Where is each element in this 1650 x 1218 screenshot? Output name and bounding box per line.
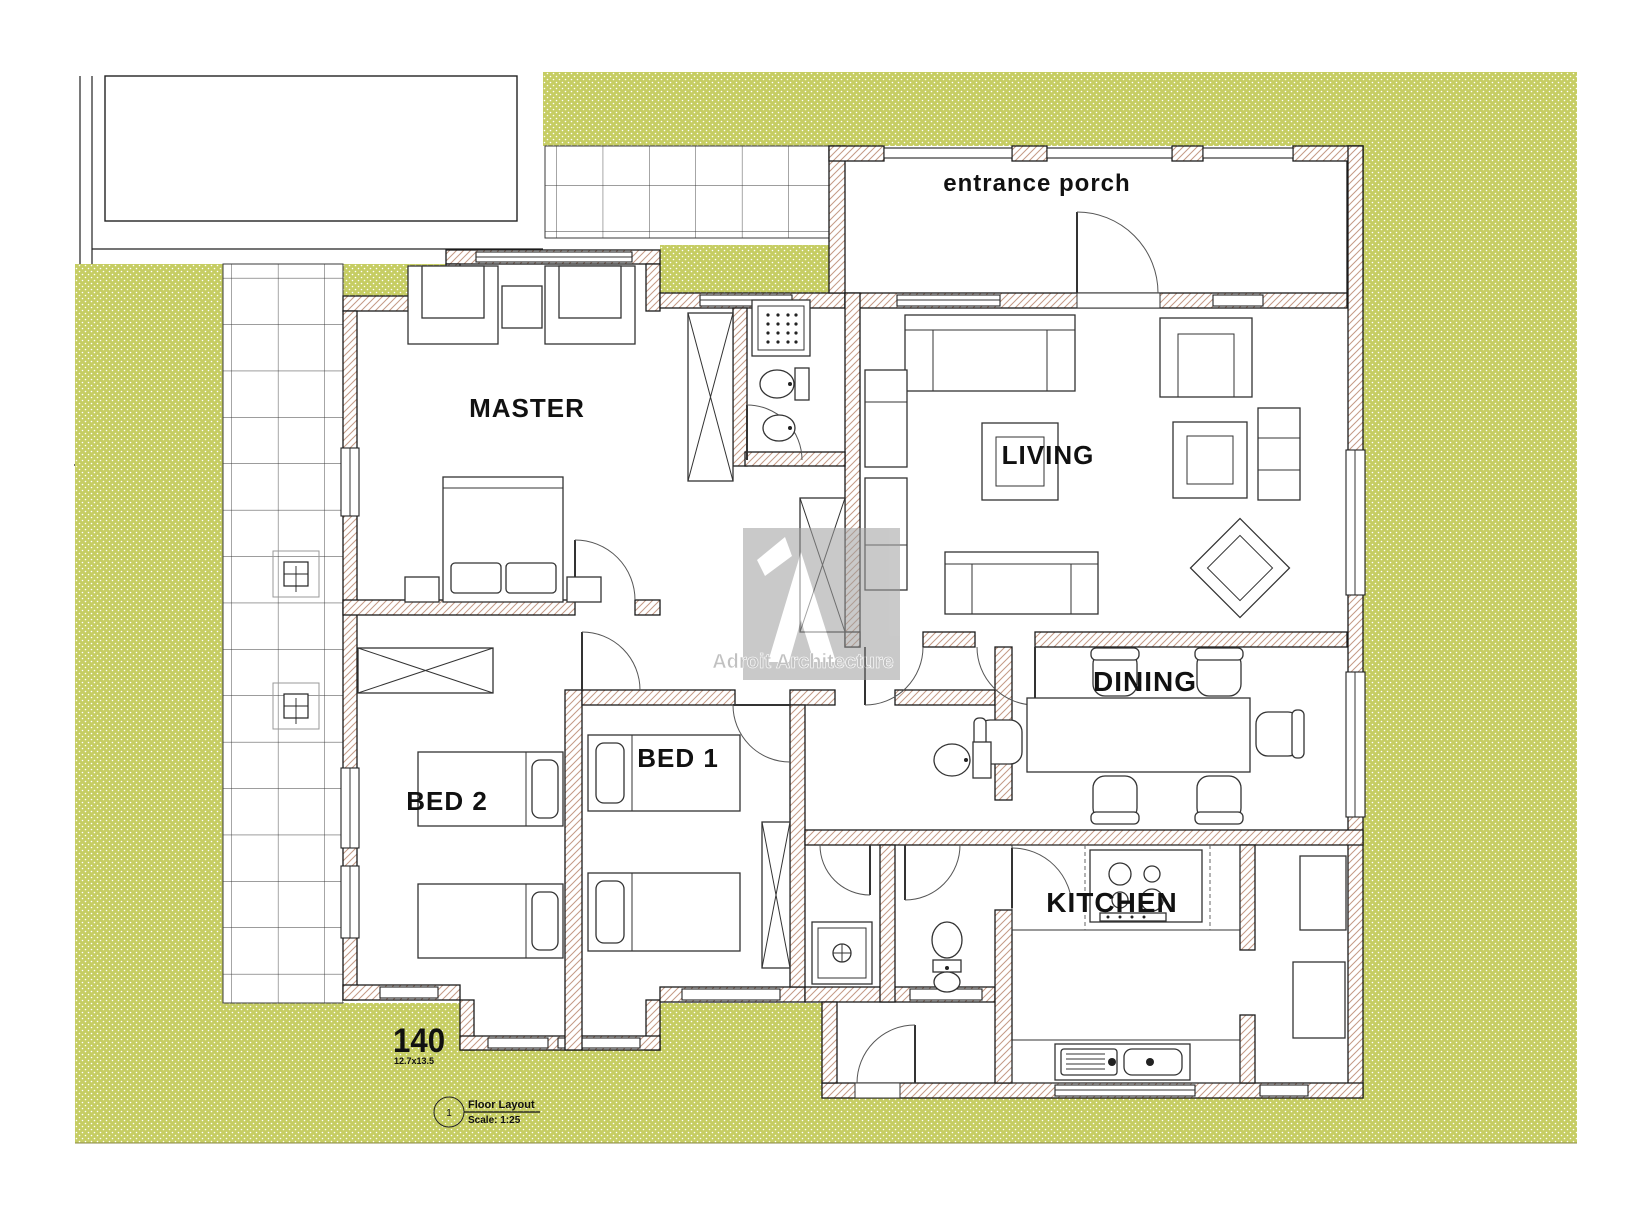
label-porch: entrance porch [943,170,1130,197]
bed-single [418,884,563,958]
master-armchair [408,266,498,344]
armchair [1160,318,1252,397]
dining-chair [1256,710,1304,758]
label-master: MASTER [469,393,585,423]
floor-plan-page: MASTER LIVING DINING KITCHEN BED 1 BED 2… [0,0,1650,1218]
side-table [502,286,542,328]
dining-chair [1195,648,1243,696]
sink [763,415,795,441]
label-bed1: BED 1 [637,743,719,773]
label-dining: DINING [1093,666,1197,697]
master-armchair [545,266,635,344]
dining-chair [1091,776,1139,824]
label-kitchen: KITCHEN [1046,887,1177,918]
nightstand [405,577,439,602]
lawn-top [543,72,1577,146]
toilet [760,368,809,400]
square-chair [1173,422,1247,498]
double-sink [1055,1044,1190,1080]
wardrobe [688,313,733,481]
nightstand [567,577,601,602]
bed-single [588,873,740,951]
walkway-tiles-top [545,146,845,238]
label-bed2: BED 2 [406,786,488,816]
watermark-text: Adroit Architecture [712,651,894,673]
wardrobe [358,648,493,693]
lawn-notch-right [660,245,829,293]
dining-chair [1195,776,1243,824]
sofa [945,552,1098,614]
sheet-scale: Scale: 1:25 [468,1115,521,1126]
label-living: LIVING [1002,440,1095,470]
toilet [934,742,991,778]
sheet-title: Floor Layout [468,1099,535,1111]
walkway-tiles-left [223,264,343,1003]
shower [752,300,810,356]
sheet-number: 1 [446,1108,452,1119]
floor-plan-canvas: MASTER LIVING DINING KITCHEN BED 1 BED 2… [0,0,1650,1218]
neighbour-plot-outline [105,76,517,221]
area-value: 140 [393,1021,445,1060]
lawn-right [1363,146,1577,1143]
shower [812,922,872,984]
side-unit [1258,408,1300,500]
sofa [905,315,1075,391]
wardrobe [762,822,790,968]
area-dimensions: 12.7x13.5 [394,1056,434,1066]
